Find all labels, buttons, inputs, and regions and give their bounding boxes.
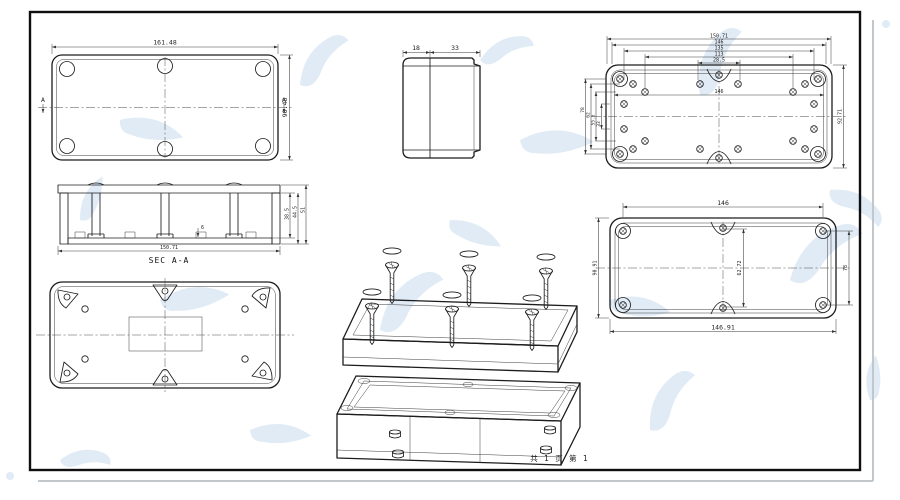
dim-lidin-top: 146 bbox=[717, 199, 729, 207]
side-view: 18 33 bbox=[403, 44, 480, 158]
dim-base-left-a: 78 bbox=[580, 107, 586, 113]
dim-section-depth-b: 44.5 bbox=[293, 206, 299, 218]
dim-lidin-bottom: 146.91 bbox=[711, 324, 735, 332]
dim-lidin-left: 90.91 bbox=[593, 260, 599, 275]
dim-base-height: 92.71 bbox=[838, 109, 844, 124]
dim-side-lid: 18 bbox=[412, 44, 420, 52]
watermark bbox=[6, 20, 891, 485]
section-marker-left: A bbox=[41, 96, 45, 113]
dim-section-depth-a: 38.5 bbox=[285, 208, 291, 220]
drawing-frame bbox=[30, 12, 873, 481]
dim-base-left-c: 55.5 bbox=[591, 114, 597, 125]
dim-base-inner: 146 bbox=[714, 89, 723, 95]
section-label: SEC A-A bbox=[149, 256, 190, 265]
dim-section-width: 150.71 bbox=[160, 245, 178, 251]
svg-text:A: A bbox=[282, 96, 286, 104]
svg-text:A: A bbox=[41, 96, 45, 104]
dim-lidin-right: 78 bbox=[843, 265, 849, 271]
dim-base-left-d: 33 bbox=[596, 121, 602, 127]
cad-drawing: 161.48 90.48 A A 18 33 bbox=[0, 0, 900, 500]
drawing-sheet: 161.48 90.48 A A 18 33 bbox=[0, 0, 900, 500]
dim-section-rib: 6 bbox=[201, 225, 204, 231]
base-inside-view: 150.71 146 135 113 28.5 146 92.71 78 62 … bbox=[580, 34, 847, 169]
dim-lid-width: 161.48 bbox=[153, 39, 177, 47]
page-footer: 共 1 页 第 1 bbox=[530, 453, 590, 463]
dim-lidin-center: 62.72 bbox=[737, 260, 743, 275]
dim-side-base: 33 bbox=[451, 44, 459, 52]
dim-base-center: 28.5 bbox=[713, 58, 725, 64]
dim-section-depth-c: 51 bbox=[301, 207, 307, 213]
exploded-assembly-view bbox=[337, 248, 580, 465]
lid-top-view: 161.48 90.48 A A bbox=[38, 39, 293, 161]
base-bottom-view bbox=[36, 278, 294, 392]
